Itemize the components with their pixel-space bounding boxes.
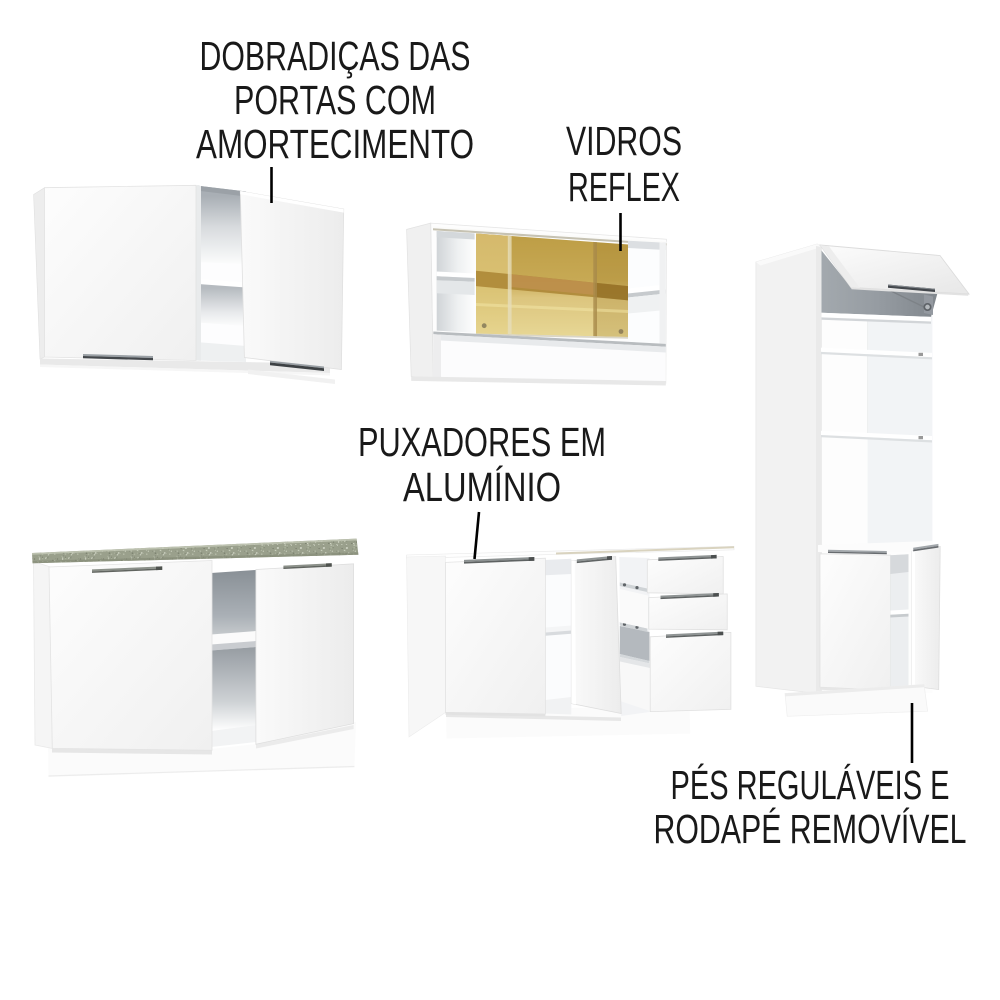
svg-text:AMORTECIMENTO: AMORTECIMENTO: [196, 121, 474, 167]
svg-text:REFLEX: REFLEX: [568, 164, 680, 210]
svg-text:PORTAS COM: PORTAS COM: [234, 77, 436, 123]
svg-text:ALUMÍNIO: ALUMÍNIO: [403, 464, 561, 510]
svg-text:PÉS REGULÁVEIS E: PÉS REGULÁVEIS E: [671, 762, 950, 808]
svg-text:DOBRADIÇAS DAS: DOBRADIÇAS DAS: [200, 33, 471, 79]
svg-text:RODAPÉ REMOVÍVEL: RODAPÉ REMOVÍVEL: [654, 806, 967, 852]
svg-text:VIDROS: VIDROS: [566, 118, 682, 164]
svg-text:PUXADORES EM: PUXADORES EM: [358, 419, 606, 465]
